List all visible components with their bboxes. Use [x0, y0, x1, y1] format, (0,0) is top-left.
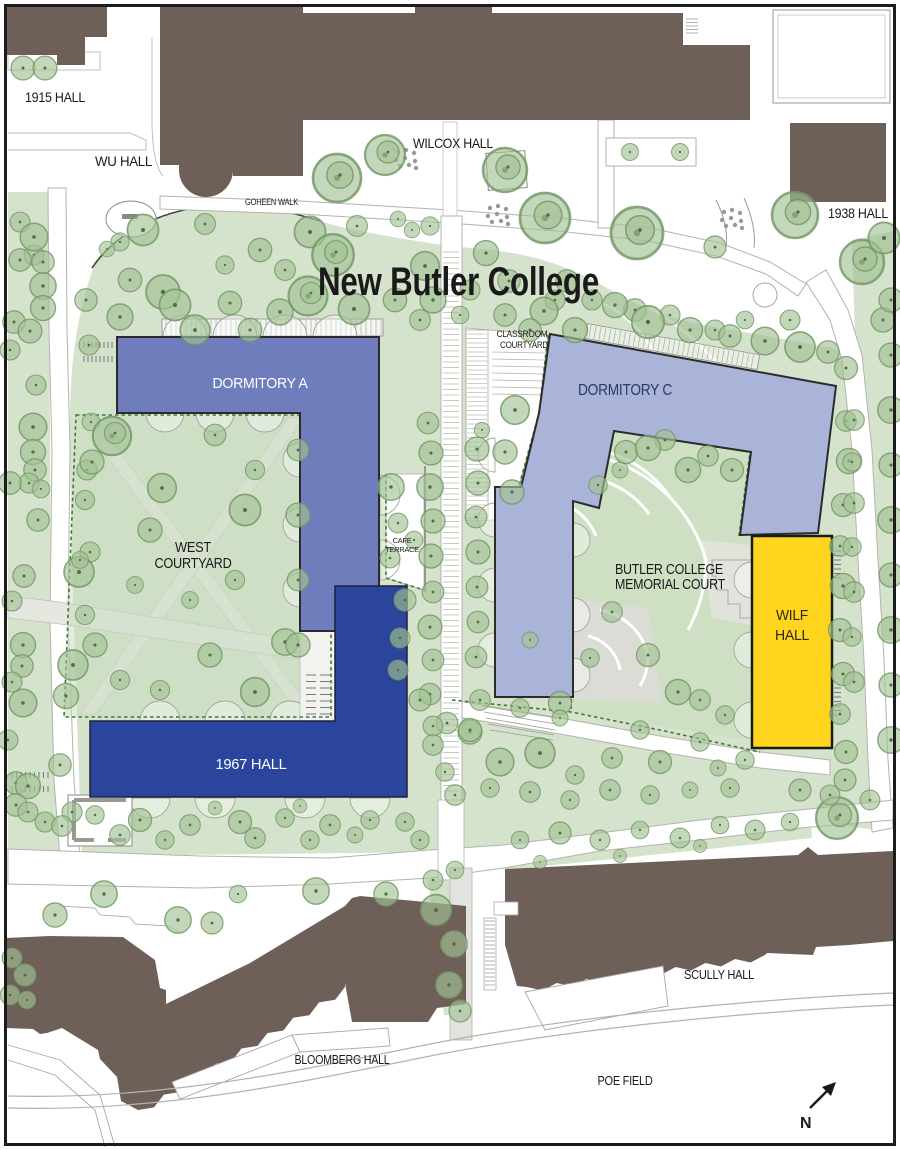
svg-text:POE FIELD: POE FIELD	[598, 1073, 653, 1088]
svg-text:COURTYARD: COURTYARD	[155, 555, 232, 572]
svg-text:New Butler College: New Butler College	[318, 260, 599, 304]
svg-text:HALL: HALL	[775, 627, 809, 644]
svg-text:GOHEEN WALK: GOHEEN WALK	[245, 197, 298, 207]
svg-text:MEMORIAL COURT: MEMORIAL COURT	[615, 577, 725, 593]
svg-text:WEST: WEST	[175, 539, 211, 556]
svg-text:BLOOMBERG HALL: BLOOMBERG HALL	[295, 1052, 390, 1067]
svg-text:1967 HALL: 1967 HALL	[216, 756, 287, 773]
svg-text:DORMITORY C: DORMITORY C	[578, 382, 672, 399]
svg-text:BUTLER COLLEGE: BUTLER COLLEGE	[615, 562, 724, 578]
svg-text:1938 HALL: 1938 HALL	[828, 205, 888, 221]
svg-text:CAFE: CAFE	[393, 536, 412, 545]
svg-text:COURTYARD: COURTYARD	[500, 340, 548, 351]
svg-text:TERRACE: TERRACE	[385, 545, 419, 554]
svg-text:CLASSROOM: CLASSROOM	[497, 329, 548, 340]
svg-text:N: N	[800, 1115, 811, 1132]
svg-text:SCULLY HALL: SCULLY HALL	[684, 967, 754, 982]
svg-text:WILCOX HALL: WILCOX HALL	[413, 135, 493, 151]
svg-text:WILF: WILF	[776, 607, 808, 624]
svg-text:DORMITORY A: DORMITORY A	[213, 375, 308, 392]
svg-text:1915 HALL: 1915 HALL	[25, 89, 85, 105]
svg-text:WU HALL: WU HALL	[95, 153, 152, 169]
